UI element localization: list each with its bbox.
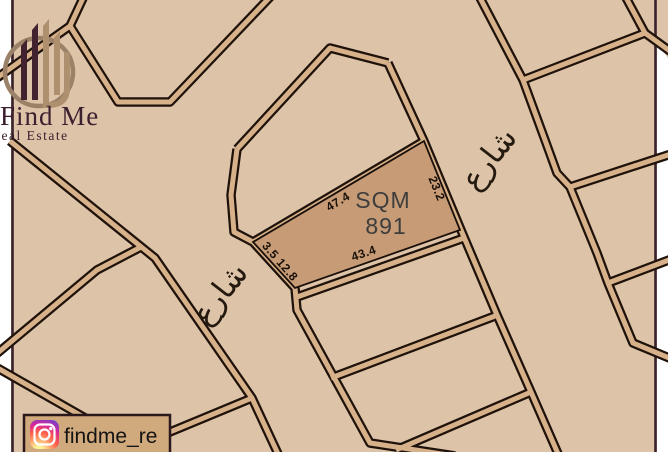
logo-subtitle: Real Estate: [0, 128, 69, 143]
plat-map: 47.4 23.2 43.4 3.5 12.8 SQM 891 شارع شار…: [0, 0, 668, 452]
plot-area-value: 891: [365, 213, 406, 239]
instagram-icon: [30, 420, 59, 449]
plat-post: 47.4 23.2 43.4 3.5 12.8 SQM 891 شارع شار…: [0, 0, 668, 452]
logo-title: Find Me: [0, 101, 99, 131]
plot-area-unit: SQM: [355, 187, 410, 213]
page-margin-right: [657, 0, 668, 452]
instagram-handle[interactable]: findme_re: [64, 425, 157, 448]
instagram-badge[interactable]: findme_re: [24, 415, 170, 452]
